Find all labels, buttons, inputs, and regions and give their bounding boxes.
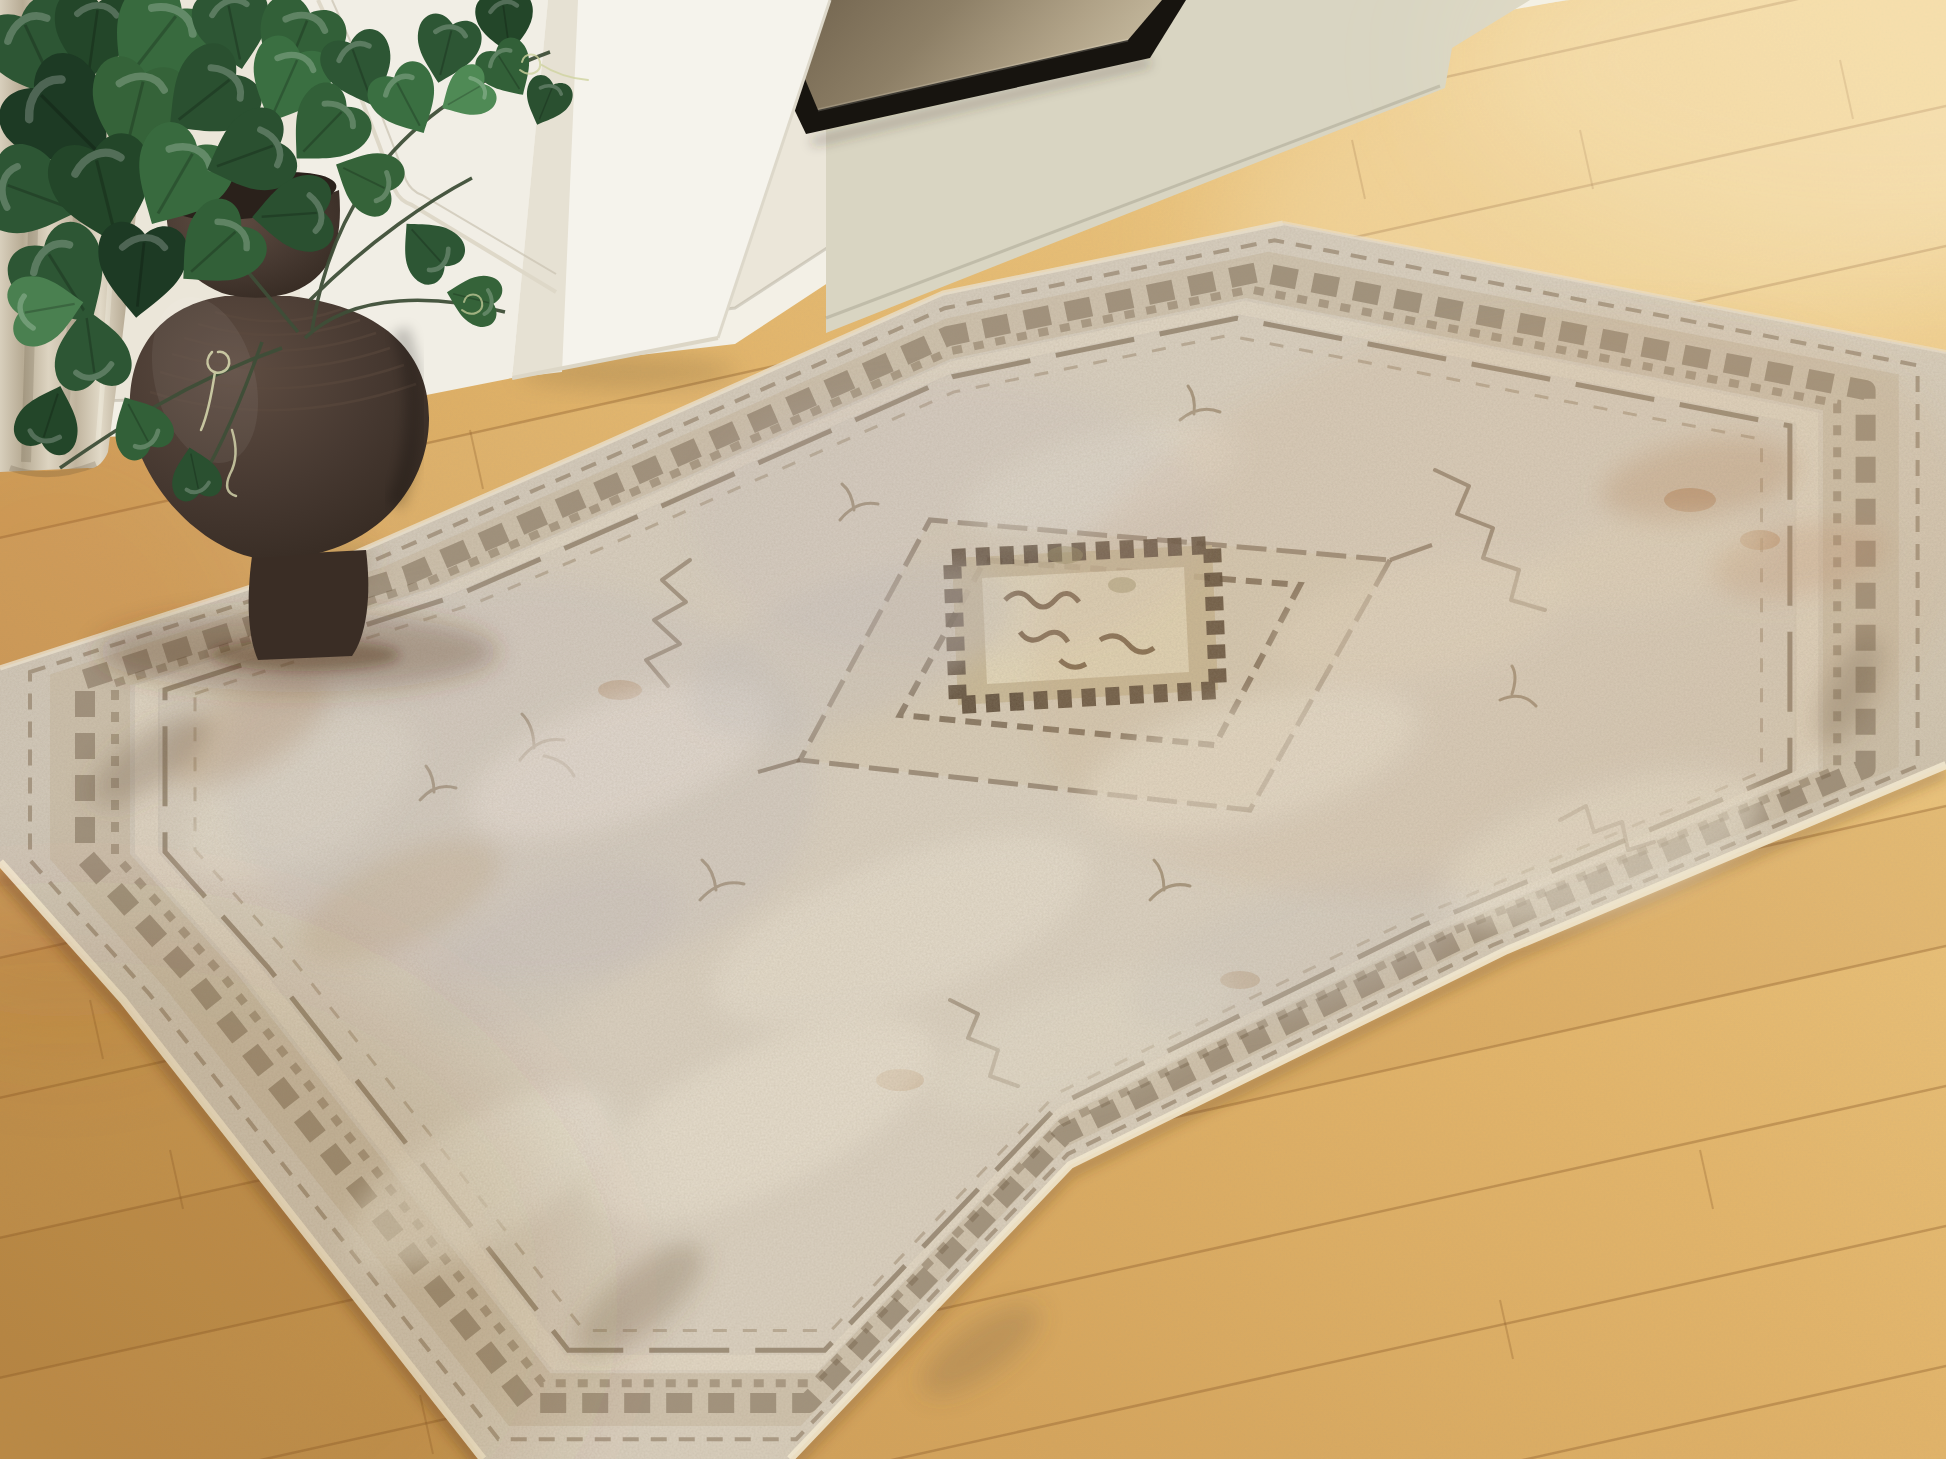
scene-svg bbox=[0, 0, 1946, 1459]
living-room-photo bbox=[0, 0, 1946, 1459]
